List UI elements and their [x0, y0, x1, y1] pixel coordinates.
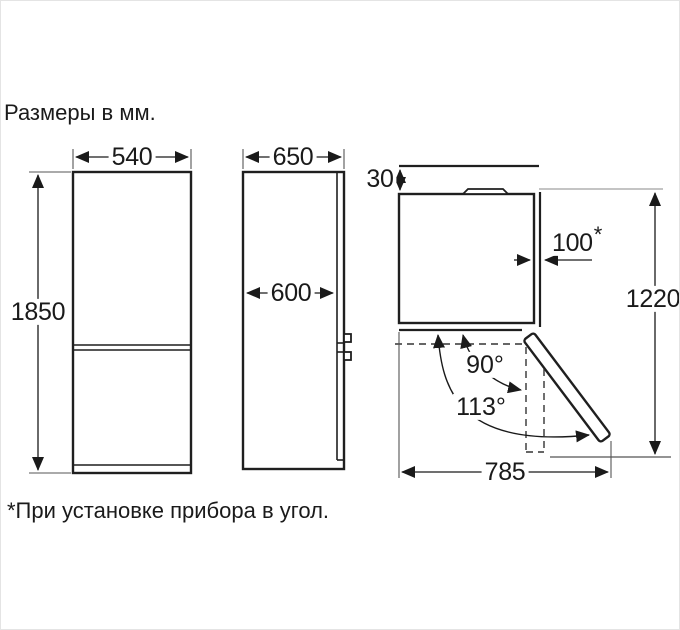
door-hinge-upper — [344, 334, 351, 342]
top-side-gap-asterisk: * — [594, 222, 602, 247]
front-width-label: 540 — [109, 144, 156, 170]
top-side-gap-label: 100* — [549, 230, 605, 256]
side-depth-body-label: 600 — [268, 280, 315, 306]
top-width-open-label: 785 — [482, 459, 529, 485]
cabinet-top-view — [399, 194, 534, 323]
dimension-diagram-page: Размеры в мм. 540 1850 650 600 30 100* 1… — [0, 0, 680, 630]
side-depth-total-label: 650 — [270, 144, 317, 170]
door-angle-90-label: 90° — [463, 352, 507, 378]
top-hinge-cover — [463, 189, 508, 194]
footnote-corner-installation: *При установке прибора в угол. — [7, 498, 329, 524]
appliance-dimension-drawing — [1, 1, 680, 630]
door-hinge-lower — [344, 352, 351, 360]
door-angle-113-label: 113° — [453, 394, 509, 420]
front-view-outline — [73, 172, 191, 473]
top-rear-gap-label: 30 — [363, 166, 396, 192]
page-title: Размеры в мм. — [4, 100, 156, 126]
open-door-113 — [523, 332, 610, 442]
side-view-outline — [243, 172, 351, 469]
top-side-gap-value: 100 — [552, 229, 593, 257]
front-height-label: 1850 — [8, 299, 68, 325]
top-depth-open-label: 1220 — [623, 286, 680, 312]
